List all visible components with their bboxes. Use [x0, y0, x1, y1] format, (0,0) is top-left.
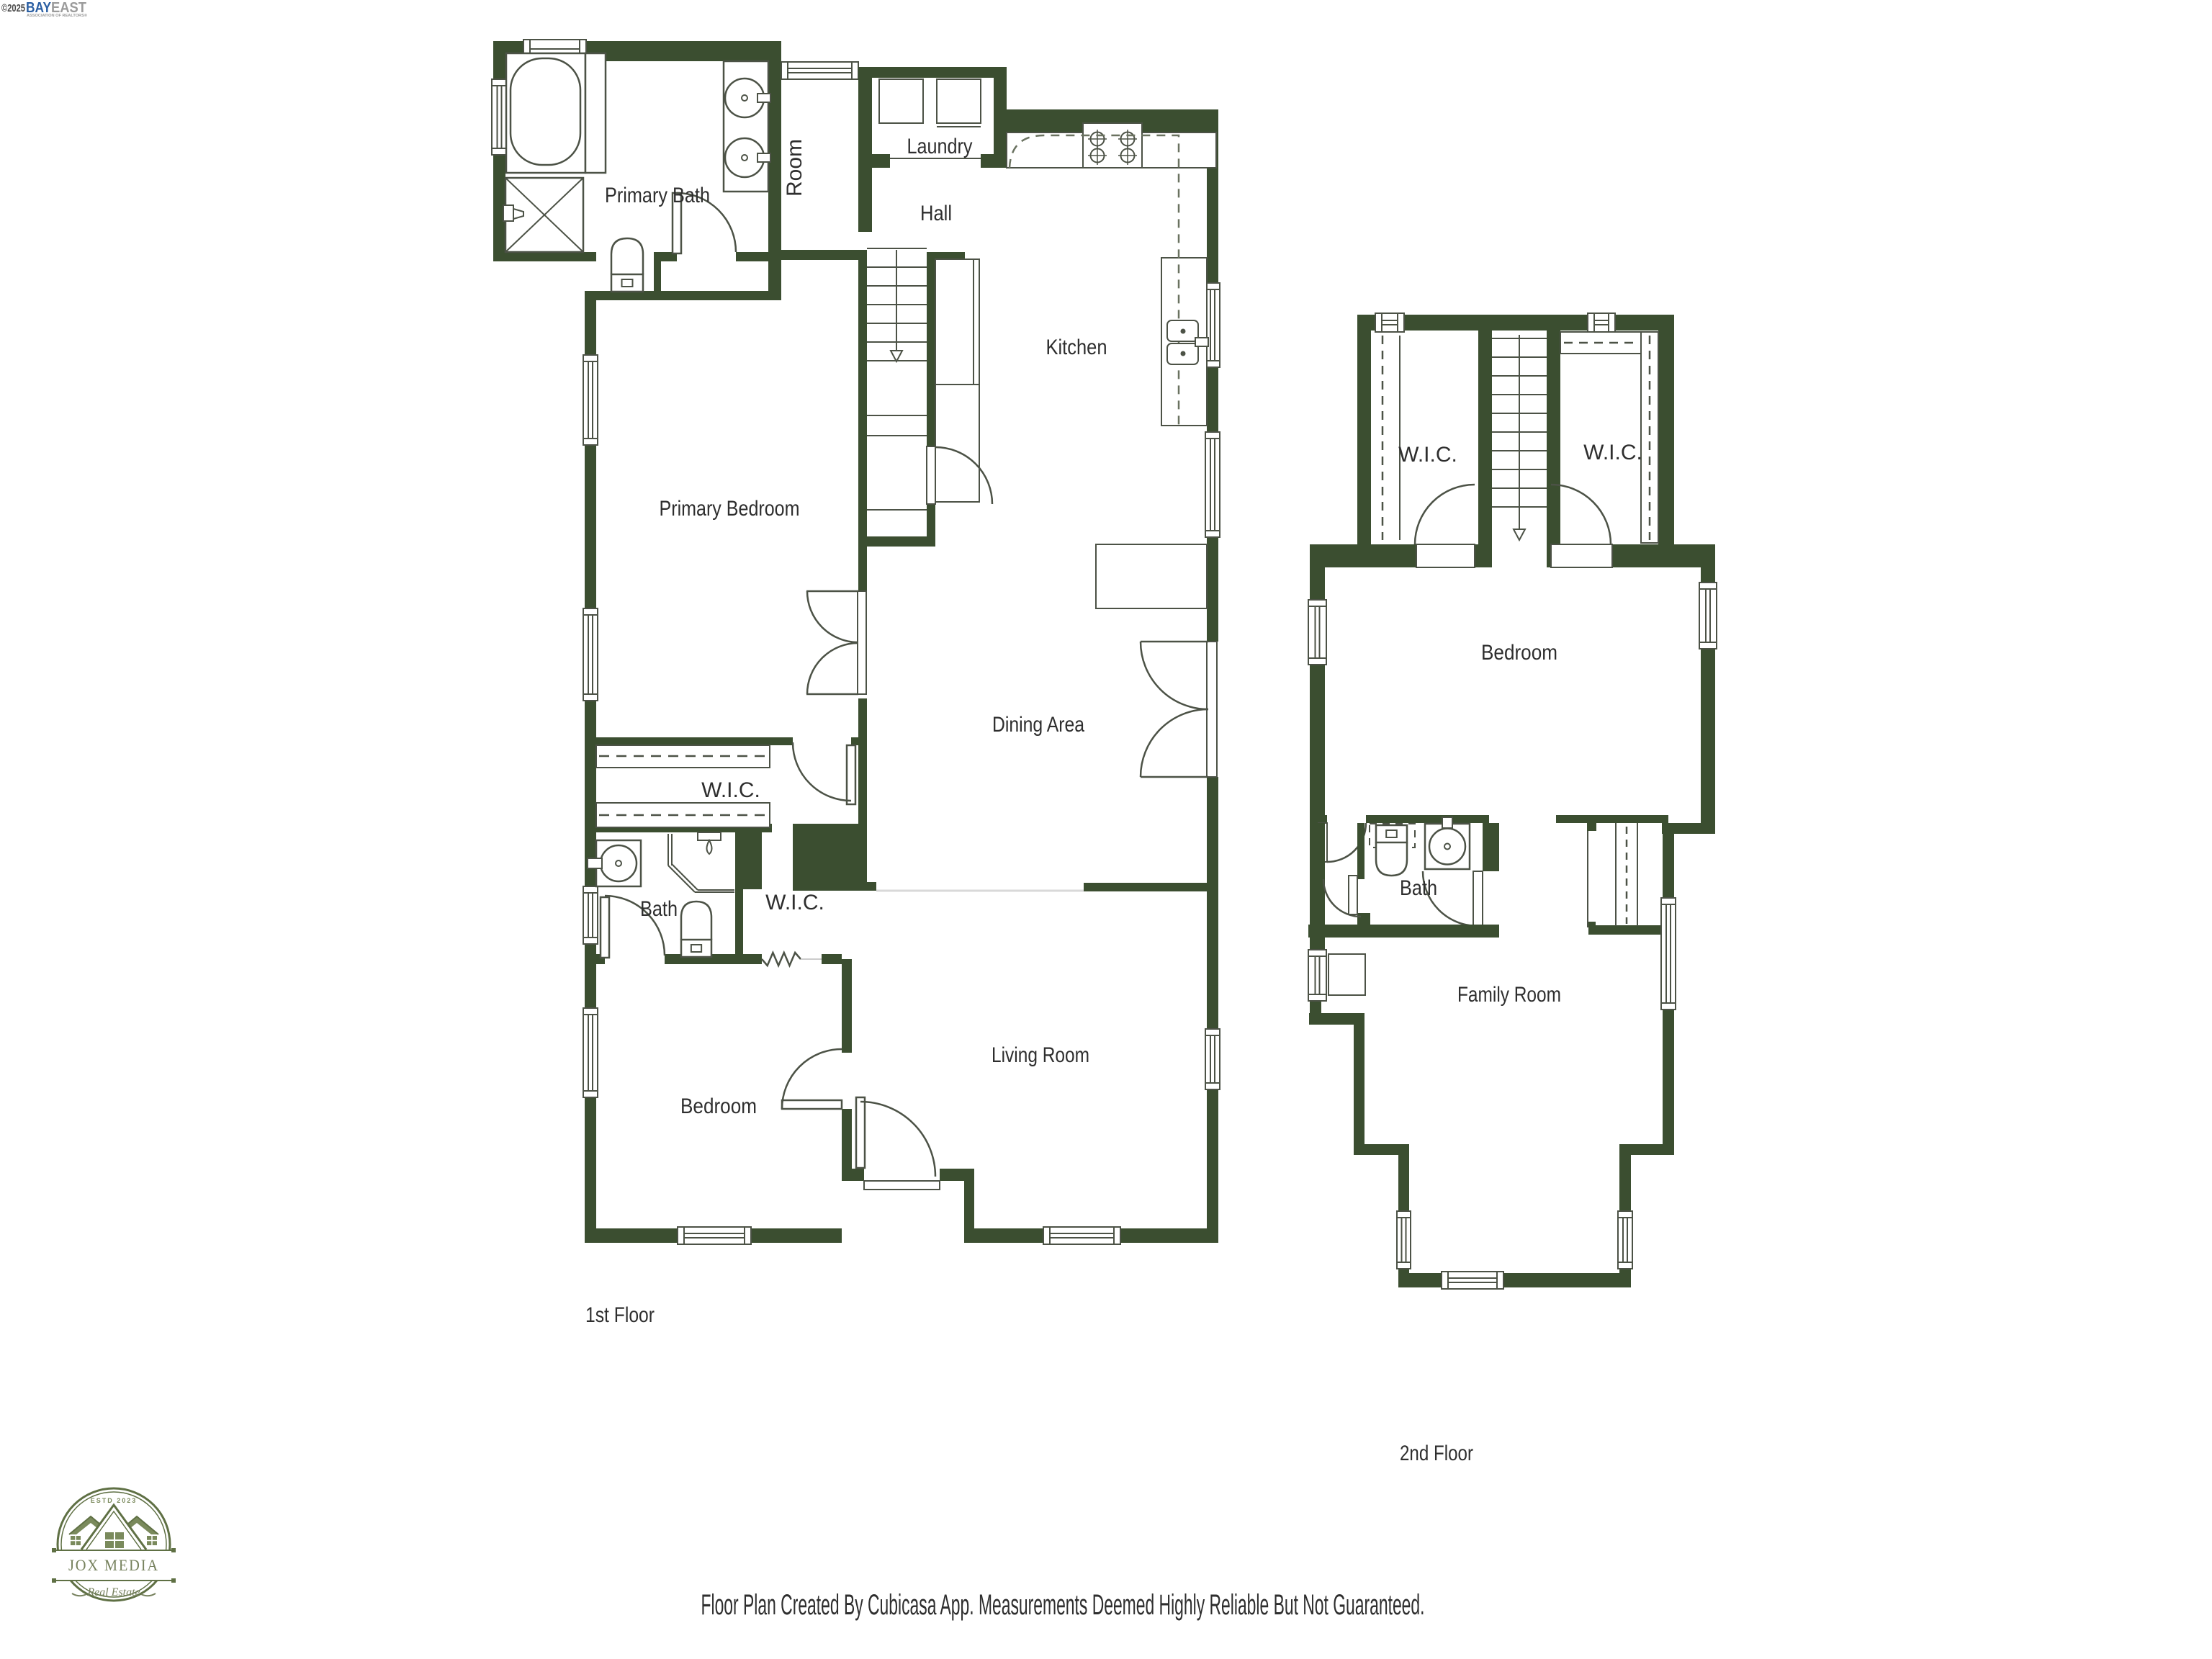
svg-text:Primary Bedroom: Primary Bedroom — [660, 497, 800, 521]
svg-text:Dining Area: Dining Area — [992, 713, 1084, 737]
svg-text:Family Room: Family Room — [1457, 983, 1561, 1007]
svg-text:ASSOCIATION OF REALTORS®: ASSOCIATION OF REALTORS® — [27, 13, 87, 18]
svg-text:Laundry: Laundry — [907, 135, 973, 158]
svg-text:JOX MEDIA: JOX MEDIA — [68, 1556, 159, 1574]
svg-text:Bath: Bath — [640, 897, 678, 921]
svg-text:Bedroom: Bedroom — [1481, 641, 1557, 665]
svg-text:Bedroom: Bedroom — [680, 1094, 757, 1118]
svg-text:Floor Plan Created By Cubicasa: Floor Plan Created By Cubicasa App. Meas… — [701, 1589, 1425, 1621]
svg-text:Bath: Bath — [1400, 876, 1437, 900]
svg-text:Room: Room — [783, 139, 806, 197]
svg-text:Living Room: Living Room — [992, 1043, 1089, 1067]
svg-text:2nd Floor: 2nd Floor — [1400, 1442, 1473, 1465]
svg-text:©2025: ©2025 — [1, 2, 25, 14]
svg-text:Primary Bath: Primary Bath — [605, 184, 710, 207]
svg-text:Hall: Hall — [920, 202, 952, 225]
svg-text:W.I.C.: W.I.C. — [701, 778, 760, 802]
svg-text:Kitchen: Kitchen — [1046, 336, 1107, 359]
svg-text:1st Floor: 1st Floor — [585, 1303, 655, 1327]
svg-text:W.I.C.: W.I.C. — [765, 891, 824, 914]
svg-text:W.I.C.: W.I.C. — [1583, 441, 1642, 464]
svg-text:W.I.C.: W.I.C. — [1398, 443, 1457, 467]
svg-text:Real Estate: Real Estate — [86, 1586, 140, 1599]
